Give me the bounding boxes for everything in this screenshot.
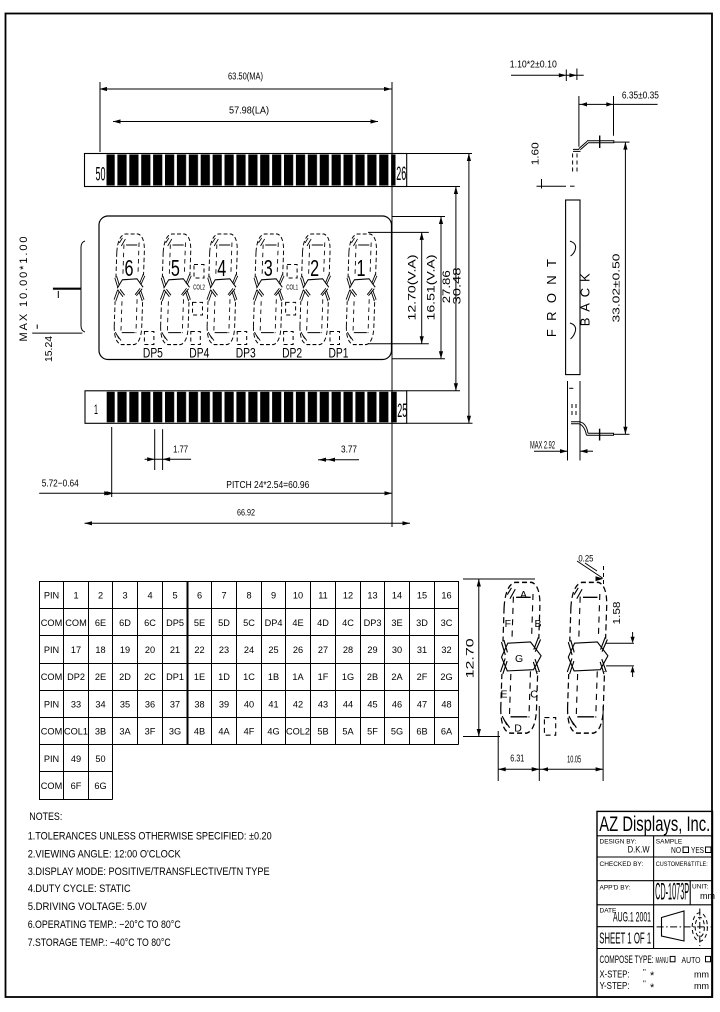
svg-text:2B: 2B: [367, 672, 378, 682]
svg-text:6: 6: [197, 591, 202, 601]
svg-text:5B: 5B: [317, 727, 328, 737]
svg-text:32: 32: [441, 645, 451, 655]
svg-text:15.24: 15.24: [44, 336, 55, 362]
svg-text:48: 48: [441, 699, 451, 709]
svg-text:18: 18: [95, 645, 105, 655]
svg-text:14: 14: [392, 591, 402, 601]
svg-text:APP'D BY:: APP'D BY:: [600, 885, 631, 892]
svg-text:COM: COM: [41, 727, 62, 737]
svg-text:1: 1: [357, 255, 366, 281]
svg-text:*: *: [650, 970, 655, 982]
svg-text:": ": [643, 980, 646, 989]
svg-text:40: 40: [244, 699, 254, 709]
svg-text:AUTO: AUTO: [682, 956, 701, 965]
svg-text:2D: 2D: [119, 672, 131, 682]
svg-text:COL1: COL1: [286, 285, 298, 292]
svg-text:4C: 4C: [342, 618, 354, 628]
svg-text:CD-1073P: CD-1073P: [655, 878, 689, 905]
svg-text:6D: 6D: [119, 618, 131, 628]
svg-text:1.77: 1.77: [173, 445, 188, 456]
svg-text:26: 26: [293, 645, 303, 655]
svg-text:45: 45: [367, 699, 377, 709]
svg-text:1.58: 1.58: [612, 601, 623, 625]
svg-text:Y-STEP:: Y-STEP:: [600, 981, 630, 992]
svg-text:26: 26: [396, 164, 406, 185]
svg-text:SAMPLE: SAMPLE: [656, 839, 683, 846]
svg-text:5: 5: [172, 591, 177, 601]
svg-text:PIN: PIN: [44, 754, 59, 764]
svg-text:4B: 4B: [194, 727, 205, 737]
svg-text:5G: 5G: [391, 727, 403, 737]
svg-text:3E: 3E: [391, 618, 402, 628]
svg-text:10.05: 10.05: [567, 755, 581, 766]
svg-text:13: 13: [367, 591, 377, 601]
svg-text:PITCH 24*2.54=60.96: PITCH 24*2.54=60.96: [226, 480, 309, 491]
svg-text:PIN: PIN: [44, 645, 59, 655]
svg-text:DP4: DP4: [189, 345, 209, 361]
svg-text:3G: 3G: [169, 727, 181, 737]
svg-text:16.51(V.A): 16.51(V.A): [426, 255, 438, 321]
svg-text:D: D: [514, 723, 522, 735]
svg-text:mm: mm: [694, 969, 709, 979]
svg-text:3: 3: [122, 591, 127, 601]
svg-text:UNIT:: UNIT:: [692, 884, 708, 891]
svg-text:COL2: COL2: [193, 285, 205, 292]
svg-text:43: 43: [318, 699, 328, 709]
svg-text:50: 50: [95, 754, 105, 764]
svg-text:7.STORAGE TEMP.: −40°C TO 80°C: 7.STORAGE TEMP.: −40°C TO 80°C: [28, 937, 171, 949]
svg-text:28: 28: [343, 645, 353, 655]
svg-text:24: 24: [244, 645, 254, 655]
svg-text:DP3: DP3: [236, 345, 256, 361]
svg-text:AZ Displays, Inc.: AZ Displays, Inc.: [599, 813, 710, 836]
svg-text:9: 9: [271, 591, 276, 601]
svg-text:22: 22: [194, 645, 204, 655]
svg-text:6.OPERATING TEMP.: −20°C TO 80: 6.OPERATING TEMP.: −20°C TO 80°C: [28, 919, 181, 931]
svg-text:41: 41: [268, 699, 278, 709]
svg-text:50: 50: [96, 165, 106, 186]
svg-text:5.72−0.64: 5.72−0.64: [42, 479, 79, 490]
svg-text:MANU: MANU: [656, 956, 669, 965]
svg-text:YES: YES: [691, 846, 704, 855]
svg-text:66.92: 66.92: [237, 508, 255, 518]
svg-text:4D: 4D: [317, 618, 329, 628]
svg-text:E: E: [500, 688, 507, 700]
svg-text:12.70: 12.70: [465, 638, 477, 678]
svg-text:CUSTOMER&TITLE:: CUSTOMER&TITLE:: [656, 861, 708, 868]
svg-text:2C: 2C: [144, 672, 156, 682]
svg-text:19: 19: [120, 645, 130, 655]
svg-text:2A: 2A: [391, 672, 403, 682]
svg-text:": ": [643, 968, 646, 977]
svg-text:4A: 4A: [218, 727, 230, 737]
svg-text:SHEET 1 OF 1: SHEET 1 OF 1: [599, 931, 651, 948]
svg-text:B: B: [534, 618, 541, 630]
svg-text:35: 35: [120, 699, 130, 709]
svg-text:4F: 4F: [244, 727, 255, 737]
svg-text:6F: 6F: [71, 781, 82, 791]
svg-text:DP2: DP2: [282, 345, 302, 361]
svg-text:COL2: COL2: [286, 727, 310, 737]
svg-text:COM: COM: [41, 672, 62, 682]
svg-text:PIN: PIN: [44, 591, 59, 601]
svg-text:4: 4: [217, 255, 226, 281]
svg-text:3B: 3B: [95, 727, 106, 737]
svg-text:1F: 1F: [318, 672, 329, 682]
svg-text:DP2: DP2: [67, 672, 85, 682]
svg-text:COMPOSE TYPE:: COMPOSE TYPE:: [600, 954, 654, 966]
svg-text:5.DRIVING VOLTAGE: 5.0V: 5.DRIVING VOLTAGE: 5.0V: [28, 901, 148, 913]
svg-text:16: 16: [441, 591, 451, 601]
svg-text:2.VIEWING ANGLE: 12:00 O'CLOCK: 2.VIEWING ANGLE: 12:00 O'CLOCK: [28, 849, 182, 861]
svg-text:31: 31: [417, 645, 427, 655]
svg-text:1: 1: [73, 591, 78, 601]
svg-text:63.50(MA): 63.50(MA): [228, 72, 263, 83]
svg-text:COM: COM: [41, 618, 62, 628]
svg-text:COM: COM: [65, 618, 86, 628]
svg-text:2G: 2G: [440, 672, 452, 682]
svg-text:7: 7: [221, 591, 226, 601]
svg-text:1: 1: [94, 401, 98, 417]
svg-text:4.DUTY CYCLE: STATIC: 4.DUTY CYCLE: STATIC: [28, 883, 131, 895]
svg-text:DP1: DP1: [329, 345, 349, 361]
svg-text:37: 37: [170, 699, 180, 709]
svg-text:33: 33: [71, 699, 81, 709]
svg-text:COL1: COL1: [64, 727, 88, 737]
svg-text:39: 39: [219, 699, 229, 709]
svg-text:C: C: [530, 688, 538, 700]
svg-text:2F: 2F: [417, 672, 428, 682]
svg-text:COM: COM: [41, 781, 62, 791]
svg-text:49: 49: [71, 754, 81, 764]
svg-text:1G: 1G: [342, 672, 354, 682]
svg-text:4E: 4E: [292, 618, 303, 628]
svg-text:1.60: 1.60: [531, 142, 542, 166]
svg-text:6A: 6A: [441, 727, 453, 737]
svg-text:29: 29: [367, 645, 377, 655]
svg-text:47: 47: [417, 699, 427, 709]
svg-text:2: 2: [98, 591, 103, 601]
svg-text:*: *: [650, 982, 655, 994]
svg-text:15: 15: [417, 591, 427, 601]
svg-text:mm: mm: [700, 891, 715, 901]
svg-text:12: 12: [343, 591, 353, 601]
svg-text:10: 10: [293, 591, 303, 601]
svg-text:23: 23: [219, 645, 229, 655]
svg-text:11: 11: [318, 591, 328, 601]
svg-text:NOTES:: NOTES:: [29, 811, 62, 823]
svg-text:36: 36: [145, 699, 155, 709]
svg-text:30.48: 30.48: [451, 268, 463, 305]
svg-text:6.35±0.35: 6.35±0.35: [622, 91, 659, 102]
svg-text:5A: 5A: [342, 727, 354, 737]
svg-text:CHECKED BY:: CHECKED BY:: [600, 861, 644, 868]
svg-text:X-STEP:: X-STEP:: [600, 969, 630, 980]
svg-text:NO: NO: [671, 846, 681, 855]
svg-text:1C: 1C: [243, 672, 255, 682]
svg-text:3D: 3D: [416, 618, 428, 628]
svg-text:46: 46: [392, 699, 402, 709]
svg-text:5D: 5D: [218, 618, 230, 628]
svg-text:6B: 6B: [416, 727, 427, 737]
svg-text:12.70(V.A): 12.70(V.A): [407, 255, 419, 321]
svg-text:F: F: [505, 618, 511, 630]
svg-text:44: 44: [343, 699, 353, 709]
svg-text:4G: 4G: [267, 727, 279, 737]
svg-text:0.25: 0.25: [578, 553, 593, 563]
svg-text:5C: 5C: [243, 618, 255, 628]
svg-text:57.98(LA): 57.98(LA): [229, 106, 269, 117]
svg-text:3: 3: [264, 255, 273, 281]
svg-text:20: 20: [145, 645, 155, 655]
svg-text:21: 21: [170, 645, 180, 655]
svg-text:6.31: 6.31: [510, 754, 524, 765]
svg-text:PIN: PIN: [44, 699, 59, 709]
svg-text:1A: 1A: [292, 672, 304, 682]
svg-text:DP3: DP3: [364, 618, 382, 628]
svg-text:3C: 3C: [441, 618, 453, 628]
svg-text:2E: 2E: [95, 672, 106, 682]
svg-text:34: 34: [95, 699, 105, 709]
svg-text:AUG.1 2001: AUG.1 2001: [613, 909, 651, 925]
svg-text:25: 25: [268, 645, 278, 655]
svg-text:1D: 1D: [218, 672, 230, 682]
svg-text:17: 17: [71, 645, 81, 655]
svg-text:3F: 3F: [145, 727, 156, 737]
svg-text:1B: 1B: [268, 672, 279, 682]
svg-text:27: 27: [318, 645, 328, 655]
svg-text:6C: 6C: [144, 618, 156, 628]
svg-text:DP4: DP4: [265, 618, 283, 628]
svg-text:G: G: [515, 653, 523, 665]
svg-text:D.K.W: D.K.W: [628, 845, 650, 855]
svg-text:42: 42: [293, 699, 303, 709]
svg-text:3.77: 3.77: [341, 445, 357, 456]
svg-text:A: A: [520, 589, 527, 601]
svg-text:1.10*2±0.10: 1.10*2±0.10: [510, 60, 557, 71]
svg-text:2: 2: [310, 255, 319, 281]
svg-text:25: 25: [397, 401, 407, 422]
svg-text:4: 4: [147, 591, 152, 601]
svg-text:1E: 1E: [194, 672, 205, 682]
svg-text:1.TOLERANCES UNLESS OTHERWISE: 1.TOLERANCES UNLESS OTHERWISE SPECIFIED:…: [28, 831, 272, 843]
svg-text:3.DISPLAY MODE: POSITIVE/TRAN: 3.DISPLAY MODE: POSITIVE/TRANSFLECTIVE/T…: [28, 866, 270, 878]
svg-text:30: 30: [392, 645, 402, 655]
svg-text:6G: 6G: [94, 781, 106, 791]
svg-text:DP1: DP1: [166, 672, 184, 682]
svg-text:6E: 6E: [95, 618, 106, 628]
svg-text:5F: 5F: [367, 727, 378, 737]
svg-text:3A: 3A: [119, 727, 131, 737]
svg-text:6: 6: [125, 255, 134, 281]
svg-text:33.02±0.50: 33.02±0.50: [611, 253, 622, 323]
svg-text:8: 8: [246, 591, 251, 601]
svg-text:38: 38: [194, 699, 204, 709]
svg-text:MAX 2.92: MAX 2.92: [530, 439, 555, 451]
svg-text:5: 5: [171, 255, 180, 281]
svg-text:DP5: DP5: [166, 618, 184, 628]
svg-text:mm: mm: [694, 981, 709, 991]
svg-text:5E: 5E: [194, 618, 205, 628]
svg-text:DP5: DP5: [143, 345, 163, 361]
